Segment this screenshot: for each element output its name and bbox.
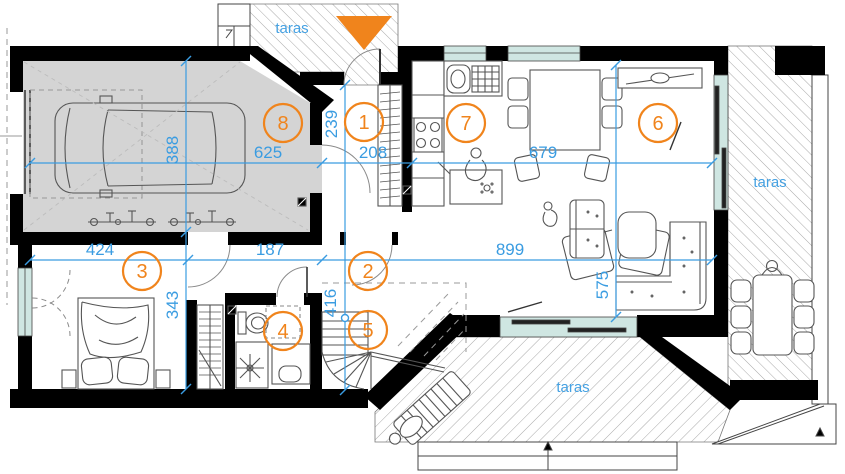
dim-entry-depth: 239 <box>322 110 341 138</box>
room-number-2: 2 <box>362 261 373 283</box>
dog-icon <box>543 202 557 226</box>
curtain-swing <box>32 270 70 336</box>
dim-entry-width: 208 <box>359 143 387 162</box>
coffee-table-icon <box>618 212 656 258</box>
bed-icon <box>62 298 170 389</box>
bathroom-door-icon <box>277 267 307 297</box>
stove-icon <box>414 118 442 152</box>
room-number-1: 1 <box>358 112 369 134</box>
right-sliding-door-icon <box>670 75 728 210</box>
room-number-3: 3 <box>136 261 147 283</box>
garden-steps <box>418 442 677 470</box>
bedroom-door-swing <box>188 245 230 287</box>
floor-plan: 1 2 3 4 5 6 7 8 625 388 239 208 679 424 … <box>0 0 845 474</box>
dining-table-icon <box>508 70 622 182</box>
kitchen-island-icon <box>438 162 502 204</box>
dim-living-depth: 575 <box>593 271 612 299</box>
entry-steps <box>218 4 250 48</box>
dim-living-width: 899 <box>496 240 524 259</box>
terrace-label-top: taras <box>275 20 308 37</box>
tv-stand-icon <box>618 68 702 88</box>
terrace-label-bottom: taras <box>556 379 589 396</box>
dim-kitchen-dining-width: 679 <box>529 143 557 162</box>
room-number-5: 5 <box>362 320 373 342</box>
dim-bedroom-width: 424 <box>86 240 114 259</box>
bedroom-window-icon <box>18 268 32 336</box>
room-number-7: 7 <box>460 113 471 135</box>
room-number-8: 8 <box>277 113 288 135</box>
shower-icon <box>236 342 268 388</box>
sofa-icon <box>570 200 604 258</box>
closet-icon <box>197 305 223 389</box>
dim-garage-width: 625 <box>254 143 282 162</box>
dim-stairs-depth: 416 <box>321 289 340 317</box>
dim-corridor-width: 187 <box>256 240 284 259</box>
room-number-6: 6 <box>652 113 663 135</box>
room-number-4: 4 <box>277 321 288 343</box>
kitchen-window-icon <box>444 46 580 61</box>
terrace-label-right: taras <box>753 174 786 191</box>
floor-plan-drawing: 1 2 3 4 5 6 7 8 625 388 239 208 679 424 … <box>0 0 845 474</box>
sink-icon <box>447 65 499 93</box>
dim-garage-depth: 388 <box>163 136 182 164</box>
dim-bedroom-depth: 343 <box>163 291 182 319</box>
